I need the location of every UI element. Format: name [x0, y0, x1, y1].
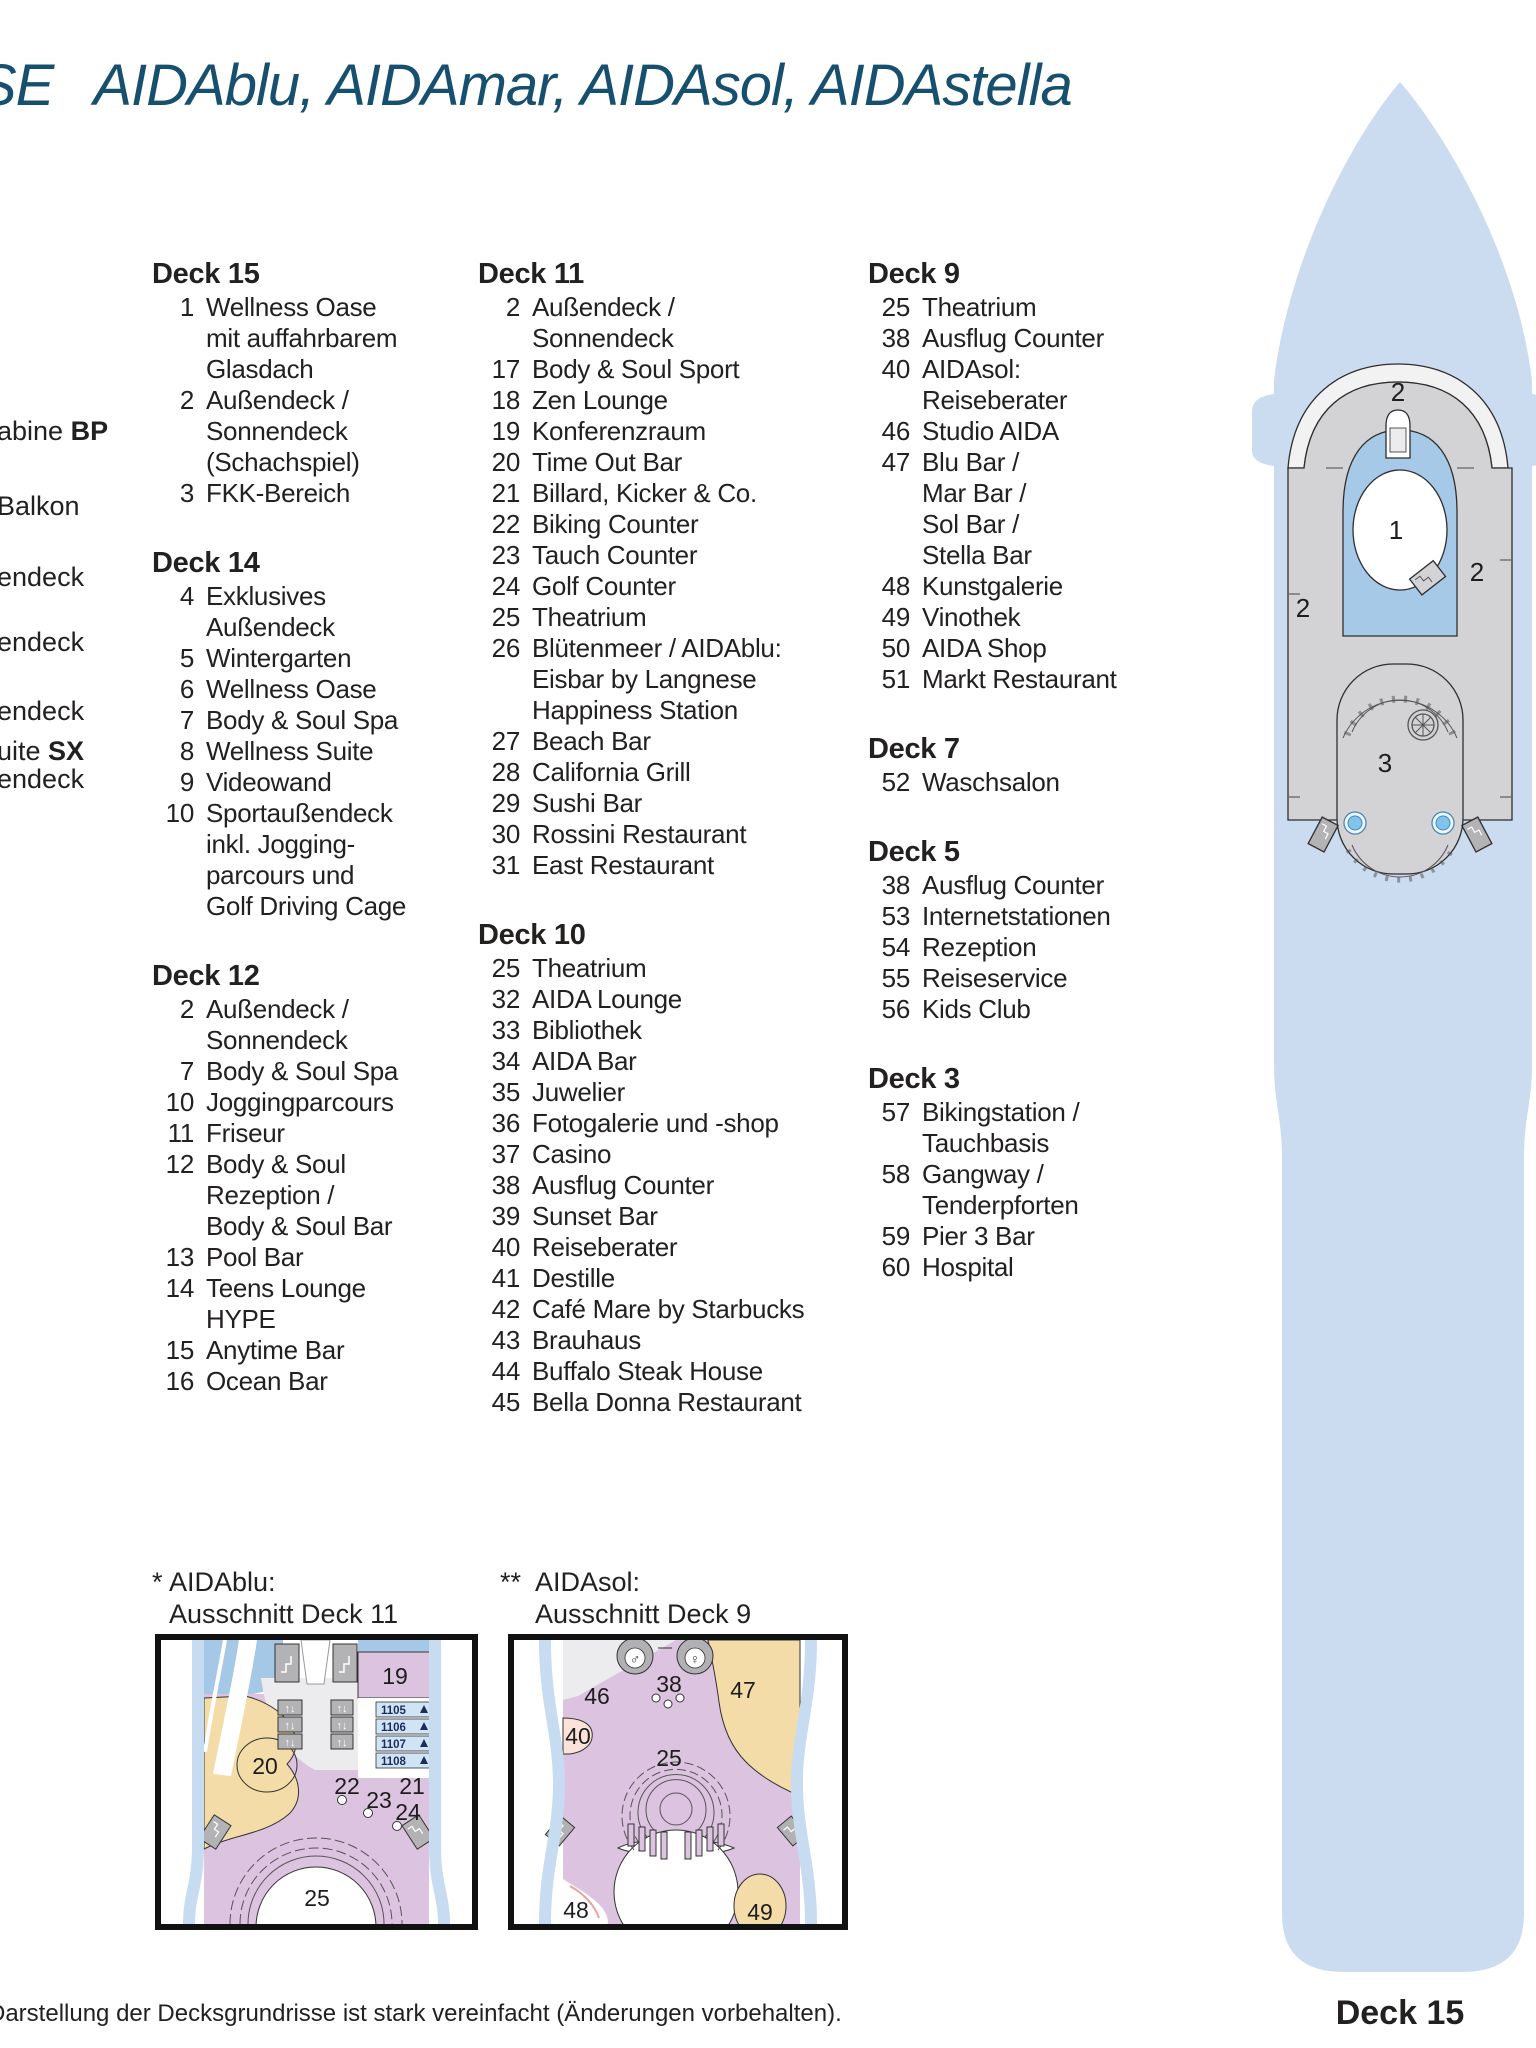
deck-item-line: Beach Bar	[532, 726, 651, 757]
inset-label-47: 47	[730, 1677, 756, 1703]
deck-item: 12Body & SoulRezeption /Body & Soul Bar	[152, 1149, 472, 1242]
deck-item-number: 42	[478, 1294, 520, 1325]
deck-item: 10Sportaußendeckinkl. Jogging-parcours u…	[152, 798, 472, 922]
deck-item: 2Außendeck /Sonnendeck(Schachspiel)	[152, 385, 472, 478]
deck-item-line: Sportaußendeck	[206, 798, 406, 829]
deck-item: 38Ausflug Counter	[478, 1170, 848, 1201]
deck-item-number: 21	[478, 478, 520, 509]
deck-item: 15Anytime Bar	[152, 1335, 472, 1366]
deck-item: 33Bibliothek	[478, 1015, 848, 1046]
legend-fragment-text: endeck	[0, 627, 84, 657]
deck-item-number: 34	[478, 1046, 520, 1077]
deck-item-number: 23	[478, 540, 520, 571]
deck-item: 8Wellness Suite	[152, 736, 472, 767]
deck-item-number: 13	[152, 1242, 194, 1273]
deck-item: 14Teens LoungeHYPE	[152, 1273, 472, 1335]
deck-item-line: Tauchbasis	[922, 1128, 1079, 1159]
deck-item: 9Videowand	[152, 767, 472, 798]
deck-item-line: Außendeck /	[532, 292, 675, 323]
deck-item: 31East Restaurant	[478, 850, 848, 881]
deck-item-number: 9	[152, 767, 194, 798]
deck-item-number: 16	[152, 1366, 194, 1397]
deck-item-line: Ausflug Counter	[922, 323, 1104, 354]
deck-item: 18Zen Lounge	[478, 385, 848, 416]
deck-item-line: Zen Lounge	[532, 385, 668, 416]
deck-item-number: 41	[478, 1263, 520, 1294]
stairs-icon	[275, 1644, 299, 1682]
deck-item-line: Body & Soul	[206, 1149, 392, 1180]
svg-text:↑↓: ↑↓	[337, 1737, 348, 1749]
deck-section: Deck 151Wellness Oasemit auffahrbaremGla…	[152, 258, 472, 509]
deck-item: 52Waschsalon	[868, 767, 1208, 798]
deck-item: 39Sunset Bar	[478, 1201, 848, 1232]
deck-item-line: AIDA Lounge	[532, 984, 682, 1015]
deck-item-line: Pier 3 Bar	[922, 1221, 1035, 1252]
deck-item: 35Juwelier	[478, 1077, 848, 1108]
deck-item-number: 10	[152, 1087, 194, 1118]
deck-section: Deck 357Bikingstation /Tauchbasis58Gangw…	[868, 1063, 1208, 1283]
deck-item-number: 18	[478, 385, 520, 416]
deck-section: Deck 112Außendeck /Sonnendeck17Body & So…	[478, 258, 848, 881]
deck-item-line: Reiseberater	[532, 1232, 677, 1263]
deck-item: 20Time Out Bar	[478, 447, 848, 478]
deck-item: 34AIDA Bar	[478, 1046, 848, 1077]
inset-ship-name: AIDAsol:	[535, 1567, 640, 1597]
deck-item: 56Kids Club	[868, 994, 1208, 1025]
deck-item-line: Reiseservice	[922, 963, 1067, 994]
deck-section: Deck 122Außendeck /Sonnendeck7Body & Sou…	[152, 960, 472, 1397]
deck-item-number: 33	[478, 1015, 520, 1046]
ship-label-starboard-deck: 2	[1470, 557, 1484, 587]
deck-item-line: Bella Donna Restaurant	[532, 1387, 801, 1418]
deck-item-line: Eisbar by Langnese	[532, 664, 782, 695]
svg-text:↑↓: ↑↓	[337, 1720, 348, 1732]
deck-item-number: 56	[868, 994, 910, 1025]
deck-item: 4ExklusivesAußendeck	[152, 581, 472, 643]
legend-fragment-code: BP	[71, 416, 109, 446]
inset-label-48: 48	[563, 1897, 589, 1923]
deck-item-line: Rossini Restaurant	[532, 819, 746, 850]
deck-list-column-3: Deck 925Theatrium38Ausflug Counter40AIDA…	[868, 258, 1208, 1321]
svg-text:↑↓: ↑↓	[285, 1737, 296, 1749]
inset-label-19: 19	[382, 1663, 408, 1689]
deck-item-line: Ausflug Counter	[532, 1170, 714, 1201]
deck-item-number: 10	[152, 798, 194, 922]
deck-item-line: Friseur	[206, 1118, 285, 1149]
deck-item-line: (Schachspiel)	[206, 447, 360, 478]
deck-item-number: 1	[152, 292, 194, 385]
deck-item-line: Außendeck /	[206, 994, 349, 1025]
deck-item: 29Sushi Bar	[478, 788, 848, 819]
deck-item-number: 52	[868, 767, 910, 798]
deck-item: 37Casino	[478, 1139, 848, 1170]
footnote-marker: **	[500, 1566, 535, 1598]
footnote-marker: *	[152, 1566, 169, 1598]
deck-item: 47Blu Bar /Mar Bar /Sol Bar /Stella Bar	[868, 447, 1208, 571]
legend-fragment: abine BP	[0, 416, 108, 446]
inset-caption-text: Ausschnitt Deck 11	[152, 1598, 398, 1630]
deck-item-number: 58	[868, 1159, 910, 1221]
deck-item-line: Rezeption	[922, 932, 1036, 963]
legend-fragment: endeck	[0, 764, 84, 794]
deck-item-number: 38	[478, 1170, 520, 1201]
svg-text:↑↓: ↑↓	[285, 1703, 296, 1715]
inset-label-25: 25	[304, 1885, 330, 1911]
deck-item-line: Joggingparcours	[206, 1087, 394, 1118]
deck-item: 38Ausflug Counter	[868, 870, 1208, 901]
deck-item-line: Internetstationen	[922, 901, 1111, 932]
deck-item: 46Studio AIDA	[868, 416, 1208, 447]
deck-item-line: Wellness Oase	[206, 292, 397, 323]
deck-item: 5Wintergarten	[152, 643, 472, 674]
deck-item: 30Rossini Restaurant	[478, 819, 848, 850]
title-ship-names: AIDAblu, AIDAmar, AIDAsol, AIDAstella	[93, 53, 1071, 118]
deck-item-line: Markt Restaurant	[922, 664, 1117, 695]
deck-item-line: Ausflug Counter	[922, 870, 1104, 901]
deck-item-number: 11	[152, 1118, 194, 1149]
deck-item-number: 31	[478, 850, 520, 881]
deck-item: 13Pool Bar	[152, 1242, 472, 1273]
deck-item-number: 32	[478, 984, 520, 1015]
deck-item-line: Außendeck	[206, 612, 335, 643]
legend-fragment-text: abine	[0, 416, 71, 446]
deck-item-number: 37	[478, 1139, 520, 1170]
deck-item-number: 38	[868, 870, 910, 901]
inset-label-21: 21	[399, 1773, 425, 1799]
deck-item-line: parcours und	[206, 860, 406, 891]
whirlpool-water	[1348, 816, 1362, 830]
deck-item-number: 57	[868, 1097, 910, 1159]
cabin-number: 1107	[381, 1739, 406, 1751]
deck-item-number: 45	[478, 1387, 520, 1418]
male-wc-icon: ♂	[630, 1651, 641, 1667]
deck-item: 58Gangway /Tenderpforten	[868, 1159, 1208, 1221]
deck-item: 40AIDAsol:Reiseberater	[868, 354, 1208, 416]
deck-item-number: 38	[868, 323, 910, 354]
deck-item: 43Brauhaus	[478, 1325, 848, 1356]
stairs-icon	[333, 1644, 357, 1682]
deck-section: Deck 752Waschsalon	[868, 733, 1208, 798]
legend-fragment: Balkon	[0, 491, 80, 521]
deck-item-line: Sunset Bar	[532, 1201, 658, 1232]
deck-item-number: 2	[152, 385, 194, 478]
legend-fragment-text: endeck	[0, 562, 84, 592]
inset-ship-name: AIDAblu:	[169, 1567, 276, 1597]
whirlpool-water	[1436, 816, 1450, 830]
deck-item: 60Hospital	[868, 1252, 1208, 1283]
deck-item: 25Theatrium	[868, 292, 1208, 323]
inset-label-40: 40	[565, 1723, 591, 1749]
legend-fragment-text: uite	[0, 736, 48, 766]
deck-item-number: 49	[868, 602, 910, 633]
deck-item-line: Rezeption /	[206, 1180, 392, 1211]
deck-item-number: 27	[478, 726, 520, 757]
deck-item: 57Bikingstation /Tauchbasis	[868, 1097, 1208, 1159]
deck-item-number: 22	[478, 509, 520, 540]
deck-item-number: 24	[478, 571, 520, 602]
inset-label-20: 20	[252, 1753, 278, 1779]
deck-item: 27Beach Bar	[478, 726, 848, 757]
deck-item-number: 40	[478, 1232, 520, 1263]
deck-item-number: 6	[152, 674, 194, 705]
inset-label-24: 24	[395, 1799, 421, 1825]
deck-item-line: Casino	[532, 1139, 611, 1170]
deck-item: 40Reiseberater	[478, 1232, 848, 1263]
deck-item-number: 39	[478, 1201, 520, 1232]
deck-item: 22Biking Counter	[478, 509, 848, 540]
deck-item-number: 3	[152, 478, 194, 509]
deck-item-line: Tenderpforten	[922, 1190, 1079, 1221]
deck-item-line: Glasdach	[206, 354, 397, 385]
title-fragment: SE	[0, 53, 53, 118]
deck-item-line: Golf Driving Cage	[206, 891, 406, 922]
deck-item-number: 28	[478, 757, 520, 788]
deck-item-number: 19	[478, 416, 520, 447]
svg-text:↑↓: ↑↓	[337, 1703, 348, 1715]
deck-item-line: inkl. Jogging-	[206, 829, 406, 860]
deck-list-column-1: Deck 151Wellness Oasemit auffahrbaremGla…	[152, 258, 472, 1435]
deck-item-line: Time Out Bar	[532, 447, 682, 478]
deck-item-number: 5	[152, 643, 194, 674]
deck-item-line: Sushi Bar	[532, 788, 642, 819]
ship-label-pool: 1	[1389, 515, 1403, 545]
deck-item-number: 55	[868, 963, 910, 994]
fkk-area-outline	[1337, 664, 1463, 874]
deck-item: 28California Grill	[478, 757, 848, 788]
deck-item-number: 43	[478, 1325, 520, 1356]
deck-item-number: 12	[152, 1149, 194, 1242]
deck-item-number: 2	[152, 994, 194, 1056]
deck-section-title: Deck 9	[868, 258, 1208, 290]
deck-item: 44Buffalo Steak House	[478, 1356, 848, 1387]
inset-plan-aidasol-deck9: ♂ ♀	[508, 1634, 848, 1930]
deck-item-number: 15	[152, 1335, 194, 1366]
deck-item: 10Joggingparcours	[152, 1087, 472, 1118]
deck-item: 51Markt Restaurant	[868, 664, 1208, 695]
deck-item-line: Golf Counter	[532, 571, 676, 602]
deck-item-number: 36	[478, 1108, 520, 1139]
deck-item-line: Gangway /	[922, 1159, 1079, 1190]
deck-item: 23Tauch Counter	[478, 540, 848, 571]
deck-item: 49Vinothek	[868, 602, 1208, 633]
deck-item-number: 40	[868, 354, 910, 416]
deck-section-title: Deck 3	[868, 1063, 1208, 1095]
deck-item: 54Rezeption	[868, 932, 1208, 963]
deck-item: 41Destille	[478, 1263, 848, 1294]
deck-item: 1Wellness Oasemit auffahrbaremGlasdach	[152, 292, 472, 385]
deck-item-number: 30	[478, 819, 520, 850]
deck-item: 24Golf Counter	[478, 571, 848, 602]
inset-plan-aidablu-deck11: ↑↓↑↓↑↓ ↑↓↑↓↑↓ 1105 1106 1107 1108	[155, 1634, 478, 1930]
deck-item-number: 7	[152, 705, 194, 736]
deck-item-line: Videowand	[206, 767, 332, 798]
deck-item-line: Bikingstation /	[922, 1097, 1079, 1128]
deck-item: 32AIDA Lounge	[478, 984, 848, 1015]
deck-item-line: Wellness Oase	[206, 674, 376, 705]
deck-item: 25Theatrium	[478, 602, 848, 633]
deck-item: 7Body & Soul Spa	[152, 1056, 472, 1087]
deck-item-number: 53	[868, 901, 910, 932]
legend-fragment-code: SX	[48, 736, 84, 766]
deck-item: 42Café Mare by Starbucks	[478, 1294, 848, 1325]
deck-item-number: 47	[868, 447, 910, 571]
deck-item-line: Kids Club	[922, 994, 1031, 1025]
deck-item-line: Body & Soul Bar	[206, 1211, 392, 1242]
deck-item-line: Bibliothek	[532, 1015, 642, 1046]
deck-item-line: Tauch Counter	[532, 540, 697, 571]
deck-item-line: Sol Bar /	[922, 509, 1032, 540]
deck-item-line: Blütenmeer / AIDAblu:	[532, 633, 782, 664]
compass-spokes	[1412, 714, 1434, 736]
deck-item-number: 50	[868, 633, 910, 664]
legend-fragment: endeck	[0, 627, 84, 657]
deck-item-number: 20	[478, 447, 520, 478]
deck-item-line: FKK-Bereich	[206, 478, 350, 509]
deck-item-line: Außendeck /	[206, 385, 360, 416]
page-title: SEAIDAblu, AIDAmar, AIDAsol, AIDAstella	[0, 52, 1072, 119]
deck-item-number: 26	[478, 633, 520, 726]
deck-section-title: Deck 5	[868, 836, 1208, 868]
deck-item-line: Ocean Bar	[206, 1366, 328, 1397]
deck-item-line: Vinothek	[922, 602, 1020, 633]
elevator-cab	[1390, 428, 1406, 452]
deck-item-number: 7	[152, 1056, 194, 1087]
deck-item-number: 60	[868, 1252, 910, 1283]
deck-item: 16Ocean Bar	[152, 1366, 472, 1397]
inset-label-49: 49	[747, 1899, 773, 1925]
deck-section-title: Deck 15	[152, 258, 472, 290]
deck-item: 48Kunstgalerie	[868, 571, 1208, 602]
deck-item-line: Hospital	[922, 1252, 1014, 1283]
deck-item-number: 25	[478, 953, 520, 984]
deck-item-line: Anytime Bar	[206, 1335, 344, 1366]
deck-item-line: AIDA Shop	[922, 633, 1047, 664]
deck-item-line: Theatrium	[532, 602, 646, 633]
deck-item: 26Blütenmeer / AIDAblu:Eisbar by Langnes…	[478, 633, 848, 726]
female-wc-icon: ♀	[690, 1651, 701, 1667]
deck-item-number: 29	[478, 788, 520, 819]
deck-item: 45Bella Donna Restaurant	[478, 1387, 848, 1418]
deck-item-line: HYPE	[206, 1304, 366, 1335]
deck-item-line: AIDAsol:	[922, 354, 1067, 385]
deck-item: 19Konferenzraum	[478, 416, 848, 447]
counter-marker	[664, 1700, 672, 1708]
deck-item-number: 14	[152, 1273, 194, 1335]
deck-item-number: 46	[868, 416, 910, 447]
legend-fragment-text: endeck	[0, 696, 84, 726]
deck-item: 55Reiseservice	[868, 963, 1208, 994]
deck-item-line: Buffalo Steak House	[532, 1356, 763, 1387]
deck-item: 21Billard, Kicker & Co.	[478, 478, 848, 509]
deck-item-line: Destille	[532, 1263, 615, 1294]
footer-note: Darstellung der Decksgrundrisse ist star…	[0, 2000, 842, 2028]
deck-item-line: Konferenzraum	[532, 416, 706, 447]
deck-item-line: Brauhaus	[532, 1325, 641, 1356]
deck-item-number: 51	[868, 664, 910, 695]
deck-section-title: Deck 7	[868, 733, 1208, 765]
inset-label-22: 22	[334, 1773, 360, 1799]
deck-item: 2Außendeck /Sonnendeck	[152, 994, 472, 1056]
deck-section-title: Deck 11	[478, 258, 848, 290]
deck-item-number: 25	[868, 292, 910, 323]
deck-item-line: Wellness Suite	[206, 736, 373, 767]
deck-item-line: Body & Soul Spa	[206, 1056, 398, 1087]
deck-item-line: Teens Lounge	[206, 1273, 366, 1304]
deck-item: 59Pier 3 Bar	[868, 1221, 1208, 1252]
deck-item-number: 48	[868, 571, 910, 602]
deck-item: 50AIDA Shop	[868, 633, 1208, 664]
deck-item: 2Außendeck /Sonnendeck	[478, 292, 848, 354]
deck-item-line: East Restaurant	[532, 850, 714, 881]
deck-item-line: Blu Bar /	[922, 447, 1032, 478]
deck-item: 36Fotogalerie und -shop	[478, 1108, 848, 1139]
deck-item-line: Billard, Kicker & Co.	[532, 478, 757, 509]
ship-label-bow-deck: 2	[1391, 377, 1405, 407]
deck-item: 53Internetstationen	[868, 901, 1208, 932]
legend-fragment: uite SX	[0, 736, 84, 766]
deck-item-line: Biking Counter	[532, 509, 698, 540]
deck-section: Deck 925Theatrium38Ausflug Counter40AIDA…	[868, 258, 1208, 695]
deck-item-number: 35	[478, 1077, 520, 1108]
deck-item-line: Body & Soul Spa	[206, 705, 398, 736]
deck-item: 38Ausflug Counter	[868, 323, 1208, 354]
legend-fragment: endeck	[0, 696, 84, 726]
deck-item-line: Happiness Station	[532, 695, 782, 726]
legend-fragment: endeck	[0, 562, 84, 592]
deck-item: 17Body & Soul Sport	[478, 354, 848, 385]
cabin-number: 1106	[381, 1722, 406, 1734]
deck-item: 6Wellness Oase	[152, 674, 472, 705]
deck-item-line: Studio AIDA	[922, 416, 1059, 447]
deck-item-number: 59	[868, 1221, 910, 1252]
deck-item: 7Body & Soul Spa	[152, 705, 472, 736]
deck-item-line: Mar Bar /	[922, 478, 1032, 509]
deck-list-column-2: Deck 112Außendeck /Sonnendeck17Body & So…	[478, 258, 848, 1456]
svg-text:↑↓: ↑↓	[285, 1720, 296, 1732]
deck-section-title: Deck 10	[478, 919, 848, 951]
inset-label-25: 25	[656, 1745, 682, 1771]
inset-label-38: 38	[656, 1671, 682, 1697]
inset-caption-aidasol: **AIDAsol: Ausschnitt Deck 9	[500, 1566, 751, 1630]
deck-section: Deck 538Ausflug Counter53Internetstation…	[868, 836, 1208, 1025]
deck-item-line: Theatrium	[922, 292, 1036, 323]
deck-item-line: Waschsalon	[922, 767, 1060, 798]
deck-item: 3FKK-Bereich	[152, 478, 472, 509]
deck-item-line: Sonnendeck	[206, 416, 360, 447]
deck-item-line: Exklusives	[206, 581, 335, 612]
inset-label-23: 23	[366, 1787, 392, 1813]
deck-item-number: 4	[152, 581, 194, 643]
deck-item-number: 54	[868, 932, 910, 963]
cabin-number: 1105	[381, 1705, 407, 1717]
inset-caption-text: Ausschnitt Deck 9	[500, 1598, 751, 1630]
ship-label-fkk-area: 3	[1378, 748, 1392, 778]
ship-label-port-deck: 2	[1296, 593, 1310, 623]
deck-item-line: AIDA Bar	[532, 1046, 637, 1077]
ship-deck-plan: 2 1 2 2 3	[1230, 60, 1536, 1990]
deck-item-line: Pool Bar	[206, 1242, 303, 1273]
deck-item-line: Sonnendeck	[206, 1025, 349, 1056]
deck-item-line: Theatrium	[532, 953, 646, 984]
legend-fragment-text: endeck	[0, 764, 84, 794]
deck-item-number: 25	[478, 602, 520, 633]
deck-item-line: Kunstgalerie	[922, 571, 1063, 602]
deck-item-line: Stella Bar	[922, 540, 1032, 571]
deck-item-line: California Grill	[532, 757, 690, 788]
inset-label-46: 46	[584, 1683, 610, 1709]
deck-item: 25Theatrium	[478, 953, 848, 984]
legend-fragment-text: Balkon	[0, 491, 80, 521]
